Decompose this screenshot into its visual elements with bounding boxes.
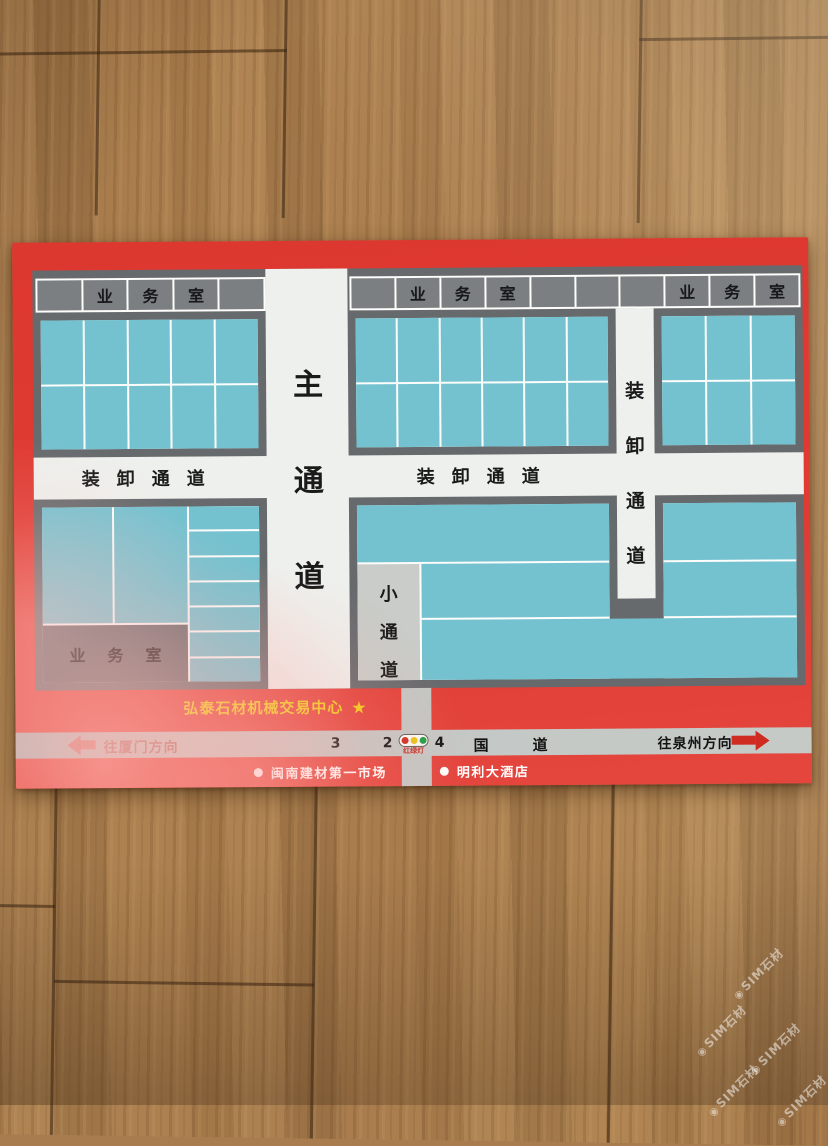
poster-title: 弘泰石材机械交易中心 — [183, 696, 343, 718]
traffic-light-green — [419, 737, 426, 744]
stall-cell-merged — [422, 617, 797, 680]
stall-cell — [41, 320, 83, 384]
office-header-cell: 务 — [711, 276, 754, 306]
stall-cell — [525, 382, 566, 446]
plank-seam — [607, 768, 615, 1143]
stall-cell — [356, 318, 397, 382]
stall-cell — [662, 316, 705, 380]
stall-cell — [663, 502, 796, 560]
stall-cell — [567, 317, 608, 381]
plank-joint — [54, 980, 314, 987]
arrow-right-icon — [756, 731, 770, 751]
stall-cell — [190, 658, 260, 682]
stall-cell — [357, 504, 609, 563]
office-header-cell: 务 — [441, 277, 484, 307]
landmark-hotel: 明利大酒店 — [440, 761, 530, 781]
stall-strip-column — [189, 506, 260, 681]
star-icon: ★ — [351, 698, 366, 718]
stall-cell — [568, 382, 609, 446]
stall-cell — [398, 383, 439, 447]
plank-seam — [637, 0, 643, 223]
national-road-label: 国道 — [474, 734, 592, 756]
traffic-light-label: 红绿灯 — [394, 746, 434, 756]
to-quanzhou-label: 往泉州方向 — [658, 733, 733, 754]
stall-cell — [483, 383, 524, 447]
office-header-cell: 室 — [174, 279, 218, 309]
office-header-cell: 室 — [756, 275, 799, 305]
stall-grid-upper-middle — [356, 317, 609, 448]
stall-grid-upper-right — [662, 315, 796, 445]
stall-cell — [189, 582, 259, 606]
map-panel: 业务室 业务室业务室 业务室 主通道 装卸通道 装卸通道 装卸通道 小通道 — [32, 265, 805, 690]
poster-title-row: 弘泰石材机械交易中心 ★ — [183, 696, 366, 718]
road-marker-3: 3 — [326, 735, 346, 751]
stall-cell — [189, 506, 259, 530]
plank-seam — [282, 0, 288, 218]
stall-cell — [85, 385, 127, 449]
office-header-cell — [531, 277, 574, 307]
landmark-market-label: 闽南建材第一市场 — [271, 762, 387, 782]
stall-cell — [483, 317, 524, 381]
landmark-hotel-label: 明利大酒店 — [457, 761, 530, 781]
main-road-label: 主通道 — [292, 338, 326, 626]
stall-cell — [441, 383, 482, 447]
stall-cell — [190, 607, 260, 631]
landmark-market: 闽南建材第一市场 — [254, 762, 387, 782]
traffic-light-red — [401, 737, 408, 744]
stall-cell — [42, 507, 113, 623]
loading-road-right-label: 装卸通道 — [417, 462, 557, 489]
office-header-cell: 室 — [486, 277, 529, 307]
arrow-left-icon — [80, 740, 96, 749]
office-header-right: 业务室业务室 — [349, 273, 800, 310]
small-road-label: 小通道 — [378, 576, 399, 690]
stall-cell — [707, 381, 750, 445]
stall-cell — [190, 632, 260, 656]
stall-cell — [84, 320, 126, 384]
stall-cell — [398, 318, 439, 382]
plank-joint — [0, 49, 287, 56]
plank-seam — [95, 0, 101, 215]
stall-cell — [440, 318, 481, 382]
stall-cell — [41, 386, 83, 450]
bullet-dot-icon — [254, 768, 263, 777]
plank-seam — [310, 769, 318, 1139]
office-header-cell — [621, 276, 664, 306]
stall-cell — [114, 507, 188, 624]
stall-cell — [421, 563, 609, 618]
stall-cell — [663, 561, 796, 616]
stall-cell — [525, 317, 566, 381]
stall-cell — [752, 315, 795, 379]
office-header-cell: 业 — [396, 278, 439, 308]
office-header-cell: 务 — [129, 280, 173, 310]
site-map-poster: 业务室 业务室业务室 业务室 主通道 装卸通道 装卸通道 装卸通道 小通道 弘泰… — [12, 237, 812, 789]
loading-road-vertical-label: 装卸通道 — [624, 364, 647, 584]
stall-cell — [128, 320, 170, 384]
plank-joint — [639, 35, 828, 41]
office-box-lower-left: 业务室 — [43, 625, 188, 683]
office-header-cell: 业 — [666, 276, 709, 306]
arrow-right-icon — [732, 736, 756, 745]
stall-cell — [216, 319, 258, 383]
office-header-cell — [37, 280, 81, 310]
stall-cell — [707, 316, 750, 380]
stall-cell — [216, 385, 258, 449]
office-header-cell — [576, 277, 619, 307]
stall-cell — [189, 557, 259, 581]
stall-cell — [172, 319, 214, 383]
plank-seam — [50, 770, 58, 1135]
to-xiamen-label: 往厦门方向 — [104, 737, 179, 758]
stall-cell — [172, 385, 214, 449]
office-header-cell: 业 — [83, 280, 127, 310]
office-header-cell — [351, 278, 394, 308]
stall-cell — [752, 381, 795, 445]
national-road-band: 往厦门方向 3 2 红绿灯 4 国道 往泉州方向 — [16, 727, 812, 759]
plank-joint — [0, 904, 55, 908]
stall-cell — [356, 384, 397, 448]
office-header-cell — [220, 279, 264, 309]
office-header-left: 业务室 — [35, 277, 265, 313]
stall-cell — [662, 381, 705, 445]
stall-cell — [189, 531, 259, 555]
stall-cell — [129, 385, 171, 449]
bullet-dot-icon — [440, 767, 449, 776]
loading-road-left-label: 装卸通道 — [82, 464, 222, 491]
traffic-light-yellow — [410, 737, 417, 744]
stall-grid-upper-left — [41, 319, 259, 450]
road-marker-4: 4 — [430, 735, 450, 751]
